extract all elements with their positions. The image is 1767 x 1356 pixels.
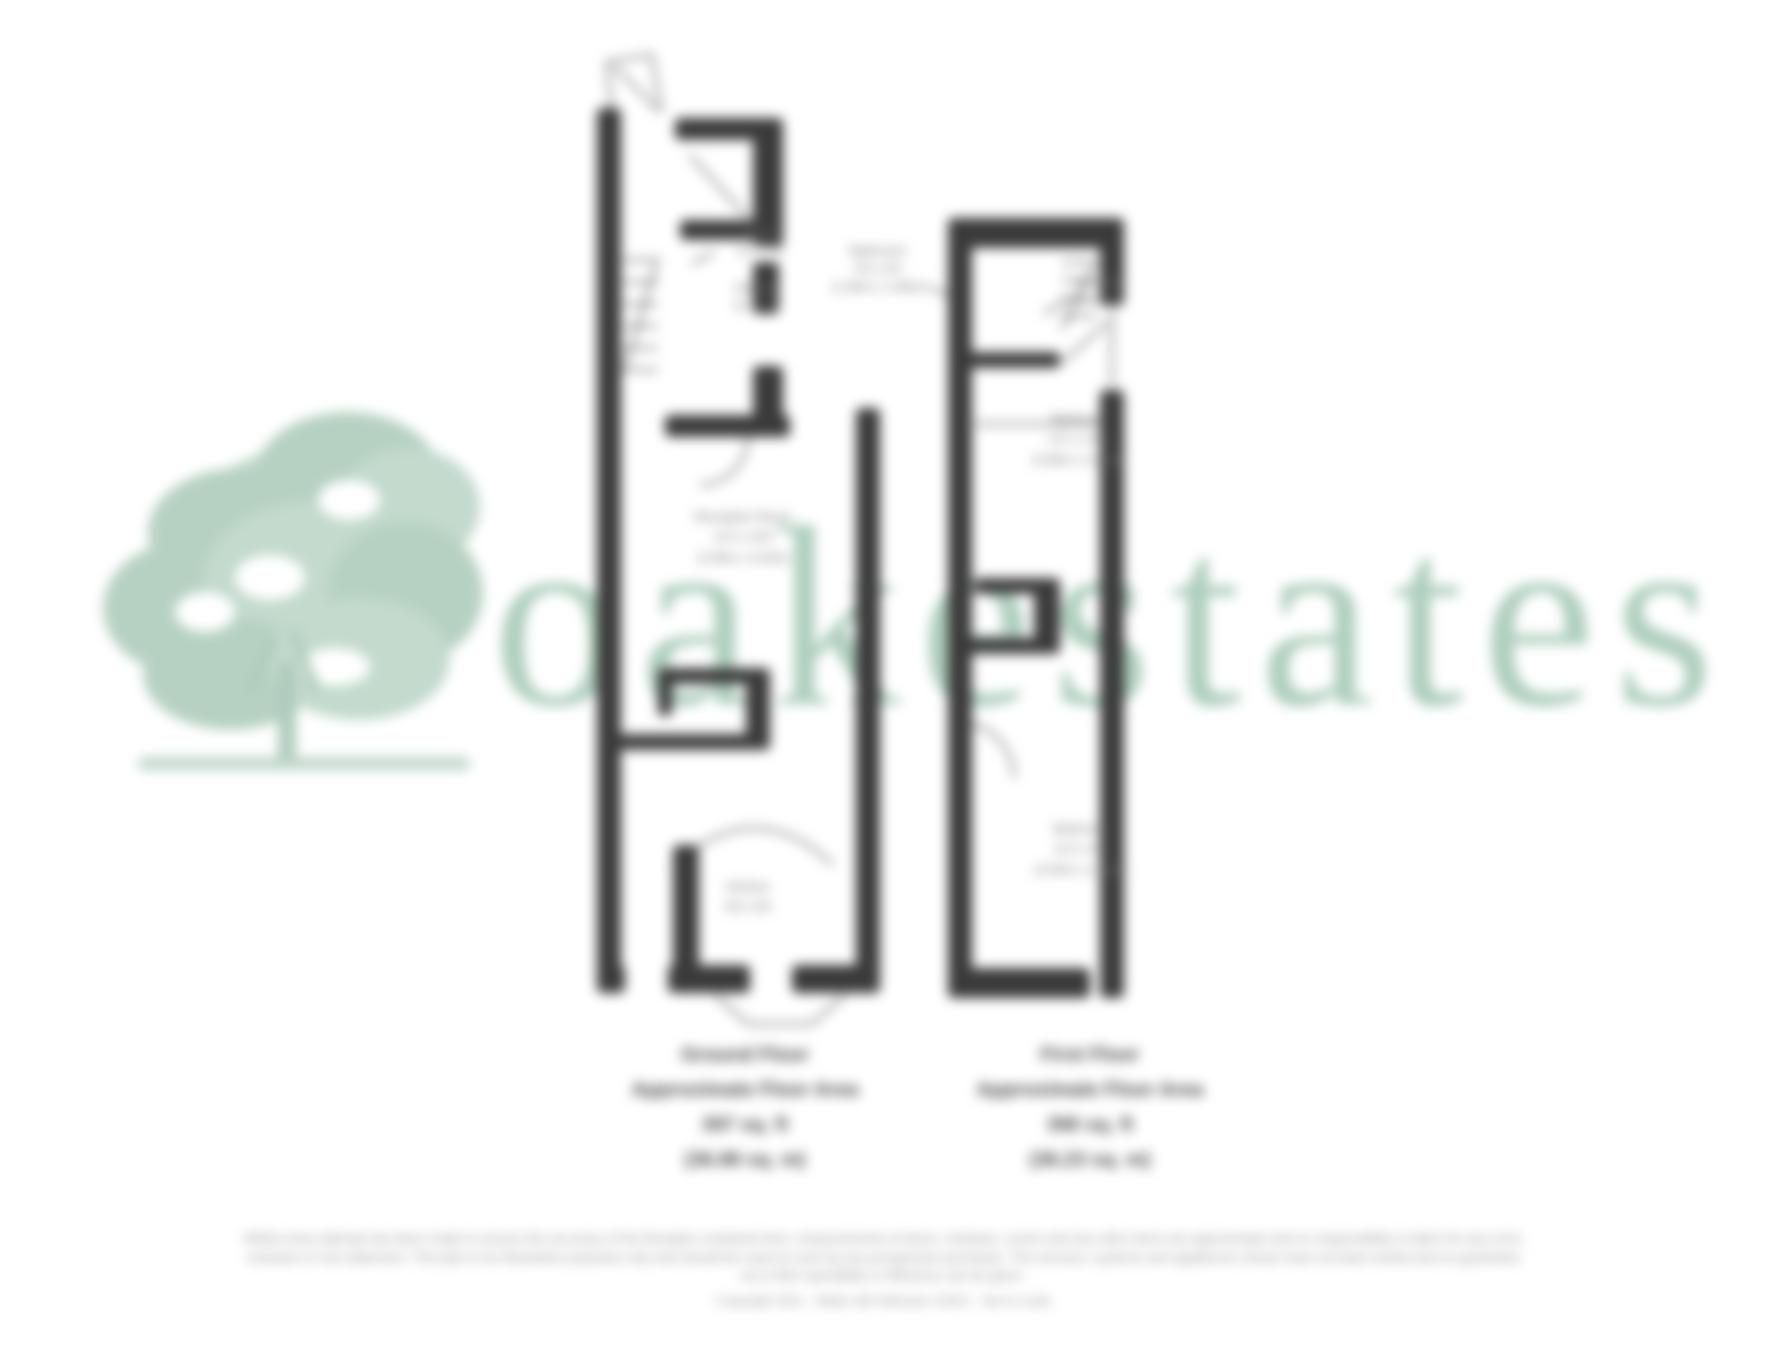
caption-area-label: Approximate Floor Area [575, 1073, 915, 1108]
room-dims: 11'2 x 9'0 [980, 839, 1180, 860]
disclaimer-line: Whilst every attempt has been made to en… [80, 1230, 1687, 1249]
wall-segment [597, 734, 770, 750]
ground-floor-caption: Ground Floor Approximate Floor Area 397 … [575, 1038, 915, 1178]
room-label-bathroom: Bathroom 6'5 x 5'6 (1.96m x 1.68m) [798, 242, 958, 296]
room-dims: 6'2 x 5'8 [687, 297, 827, 315]
wall-segment [960, 352, 1060, 368]
room-name: Bathroom [798, 242, 958, 260]
wall-segment [597, 965, 625, 993]
floorplan-image: oakestates [0, 0, 1767, 1356]
caption-floor-name: First Floor [920, 1038, 1260, 1073]
room-name: Reception Room [643, 506, 843, 527]
bathroom-door-swing [1063, 322, 1108, 362]
room-dims-metric: (3.48m x 3.20m) [643, 548, 843, 569]
rear-bay-window [716, 996, 844, 1024]
room-label-landing: Landing 8'4 x 2'11 [1018, 274, 1178, 310]
wall-segment [856, 408, 880, 993]
room-dims-metric: (3.68m x 3.18m) [978, 450, 1178, 471]
room-name: Kitchen [648, 876, 848, 897]
disclaimer-line: as to their operability or efficiency ca… [80, 1267, 1687, 1286]
copyright-line: Copyright 2021 · Made with Metropix ©202… [80, 1292, 1687, 1311]
wall-segment [753, 366, 783, 437]
room-dims-metric: (1.96m x 1.68m) [798, 278, 958, 296]
room-dims: 9'8 x 8'6 [648, 897, 848, 918]
wall-segment [948, 968, 1090, 998]
wall-segment [950, 638, 1060, 654]
room-label-reception: Reception Room 11'5 x 10'6 (3.48m x 3.20… [643, 506, 843, 569]
room-label-bedroom2: Bedroom 11'2 x 9'0 (3.40m x 2.74m) [980, 818, 1180, 881]
room-name: Bedroom [980, 818, 1180, 839]
front-door-swing [614, 66, 658, 110]
reception-door-arc [700, 437, 748, 485]
room-name: Store [690, 224, 830, 242]
disclaimer-line: omission or mis-statement. This plan is … [80, 1249, 1687, 1268]
room-label-bedroom1: Bedroom 12'1 x 10'5 (3.68m x 3.18m) [978, 408, 1178, 471]
room-dims-metric: (3.40m x 2.74m) [980, 860, 1180, 881]
room-dims: 11'5 x 10'6 [643, 527, 843, 548]
wall-segment [1100, 390, 1124, 998]
caption-area-ft: 397 sq. ft [575, 1108, 915, 1143]
wall-segment [948, 218, 1124, 248]
caption-area-label: Approximate Floor Area [920, 1073, 1260, 1108]
store-door-swing [690, 155, 748, 218]
disclaimer-text: Whilst every attempt has been made to en… [80, 1230, 1687, 1310]
wall-segment [668, 965, 750, 993]
caption-area-m: (36.23 sq. m) [920, 1143, 1260, 1178]
caption-area-m: (36.88 sq. m) [575, 1143, 915, 1178]
wall-segment [948, 218, 972, 998]
wall-segment [792, 965, 880, 993]
room-label-kitchen: Kitchen 9'8 x 8'6 [648, 876, 848, 918]
room-dims: 12'1 x 10'5 [978, 429, 1178, 450]
blurred-content: oakestates [0, 0, 1767, 1356]
caption-floor-name: Ground Floor [575, 1038, 915, 1073]
room-name: Landing [1018, 274, 1178, 292]
wall-segment [658, 668, 672, 716]
room-dims: 6'5 x 5'6 [798, 260, 958, 278]
caption-area-ft: 390 sq. ft [920, 1108, 1260, 1143]
stairs-stringer [624, 258, 658, 372]
room-name: Bedroom [978, 408, 1178, 429]
first-floor-caption: First Floor Approximate Floor Area 390 s… [920, 1038, 1260, 1178]
wall-segment [597, 108, 621, 991]
room-dims: 8'4 x 2'11 [1018, 292, 1178, 310]
